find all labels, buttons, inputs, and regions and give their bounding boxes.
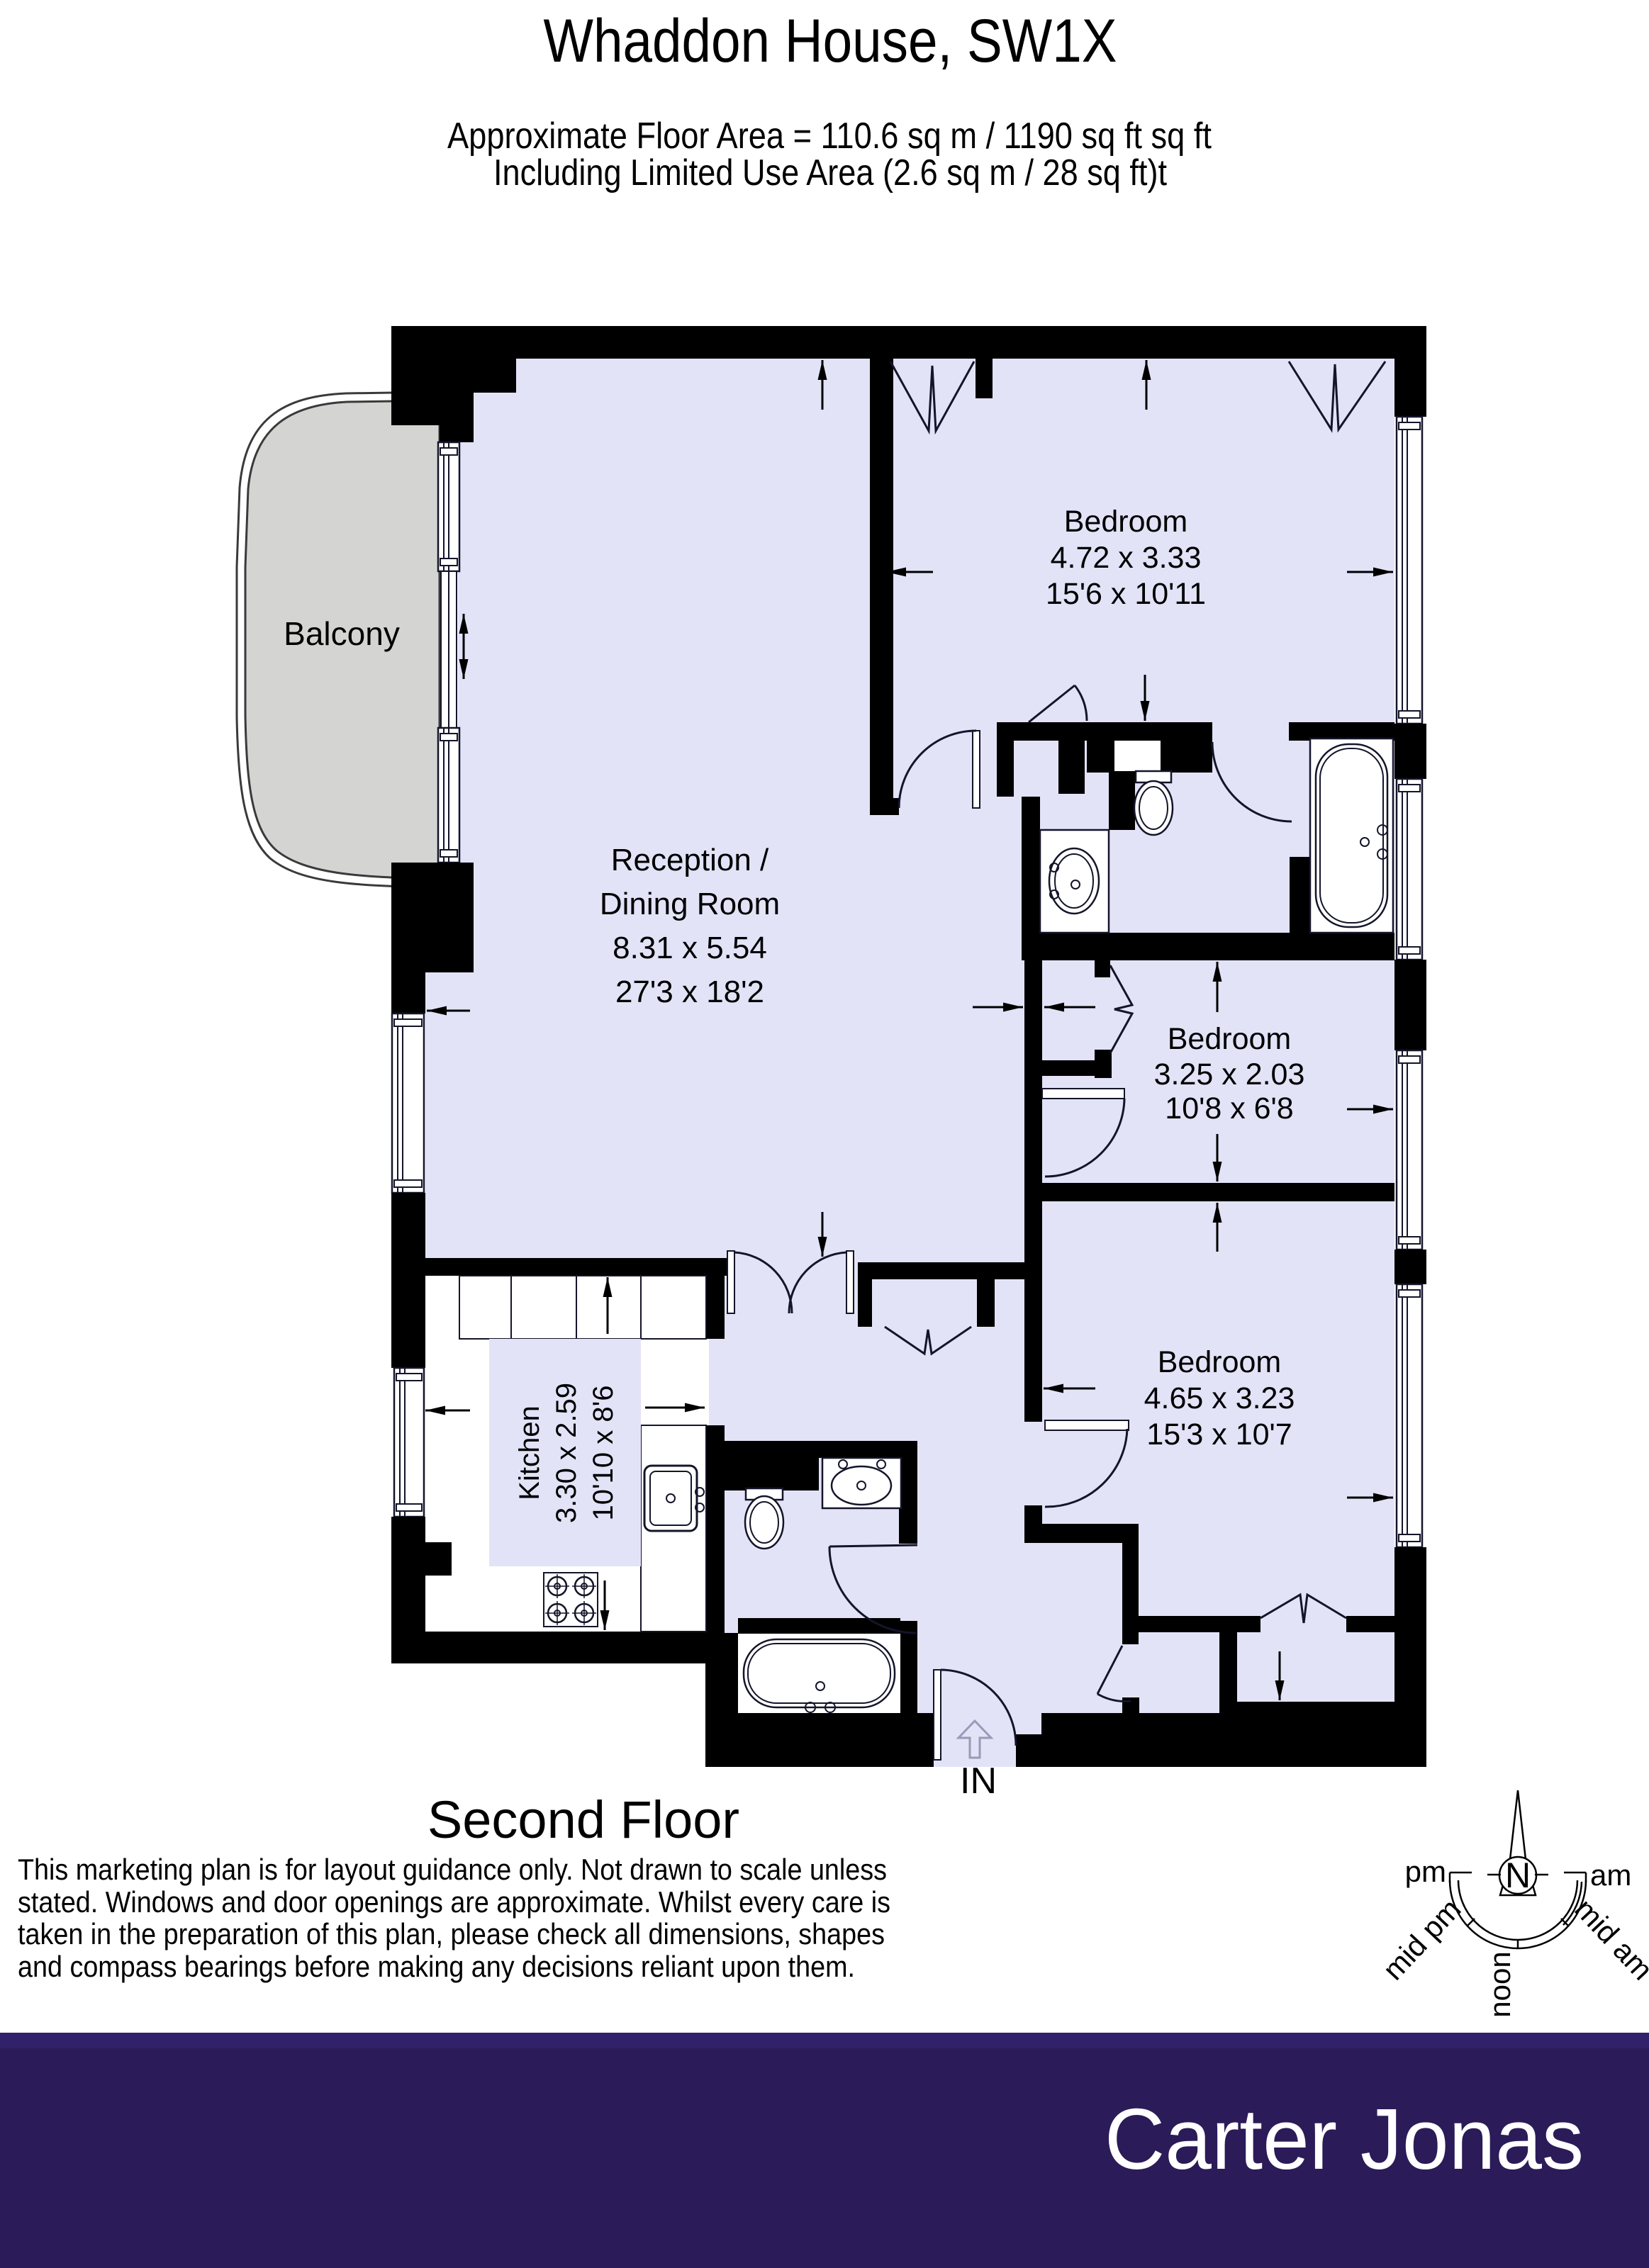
svg-text:N: N bbox=[1505, 1856, 1531, 1895]
svg-text:Approximate Floor Area = 110.6: Approximate Floor Area = 110.6 sq m / 11… bbox=[447, 116, 1212, 157]
svg-text:noon: noon bbox=[1483, 1951, 1516, 2017]
svg-text:3.25 x 2.03: 3.25 x 2.03 bbox=[1154, 1057, 1305, 1091]
svg-text:27'3 x 18'2: 27'3 x 18'2 bbox=[615, 975, 764, 1009]
svg-text:and compass bearings before ma: and compass bearings before making any d… bbox=[18, 1950, 855, 1983]
svg-text:Dining Room: Dining Room bbox=[600, 887, 780, 921]
svg-text:Bedroom: Bedroom bbox=[1158, 1345, 1281, 1379]
svg-text:Second Floor: Second Floor bbox=[427, 1790, 739, 1849]
svg-text:10'10 x 8'6: 10'10 x 8'6 bbox=[588, 1386, 619, 1521]
svg-text:Bedroom: Bedroom bbox=[1168, 1022, 1291, 1056]
svg-text:4.72 x 3.33: 4.72 x 3.33 bbox=[1051, 541, 1202, 575]
svg-text:Bedroom: Bedroom bbox=[1064, 505, 1187, 539]
svg-text:Whaddon House, SW1X: Whaddon House, SW1X bbox=[544, 7, 1117, 75]
svg-text:taken in the preparation of th: taken in the preparation of this plan, p… bbox=[18, 1917, 885, 1950]
svg-text:15'3 x 10'7: 15'3 x 10'7 bbox=[1146, 1417, 1292, 1452]
svg-text:Carter Jonas: Carter Jonas bbox=[1105, 2091, 1584, 2187]
svg-text:3.30 x 2.59: 3.30 x 2.59 bbox=[551, 1383, 582, 1523]
svg-text:This marketing plan is for lay: This marketing plan is for layout guidan… bbox=[18, 1853, 887, 1886]
svg-text:15'6 x 10'11: 15'6 x 10'11 bbox=[1046, 577, 1206, 611]
svg-text:Reception /: Reception / bbox=[611, 843, 769, 877]
svg-text:4.65 x 3.23: 4.65 x 3.23 bbox=[1144, 1381, 1295, 1415]
svg-text:stated. Windows and door openi: stated. Windows and door openings are ap… bbox=[18, 1885, 890, 1919]
svg-text:am: am bbox=[1590, 1858, 1631, 1892]
svg-text:Including Limited Use Area (2.: Including Limited Use Area (2.6 sq m / 2… bbox=[493, 152, 1167, 193]
svg-text:8.31 x 5.54: 8.31 x 5.54 bbox=[613, 931, 767, 965]
svg-text:IN: IN bbox=[960, 1761, 997, 1802]
svg-text:Balcony: Balcony bbox=[284, 615, 400, 652]
svg-text:10'8 x 6'8: 10'8 x 6'8 bbox=[1165, 1091, 1293, 1125]
svg-text:pm: pm bbox=[1405, 1855, 1446, 1888]
svg-text:Kitchen: Kitchen bbox=[514, 1405, 545, 1500]
